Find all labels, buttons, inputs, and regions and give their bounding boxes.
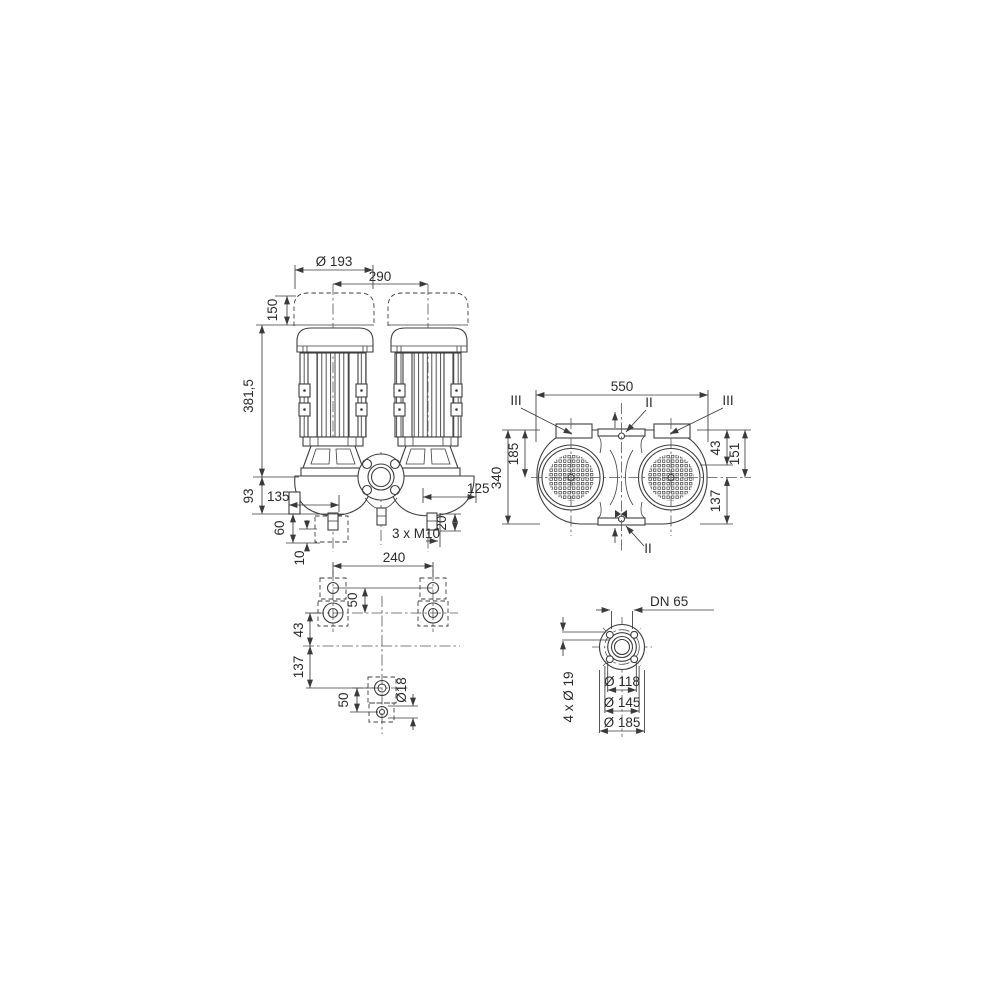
dim-overall-width: 340 (489, 467, 504, 490)
section-mark-II-bottom: II (644, 541, 652, 556)
plan-view: 550 340 185 43 151 137 III III II II (489, 379, 751, 556)
dim-edge-to-center: 151 (727, 443, 742, 466)
dim-bolt-hole-diameter: Ø18 (394, 677, 409, 703)
dim-axis-offset: 43 (291, 622, 306, 637)
drain-plug-center (377, 508, 386, 525)
dim-bolt-spacing: 240 (383, 550, 406, 565)
dim-center-to-edge: 137 (708, 490, 723, 513)
dim-raised-face-diameter: Ø 118 (604, 674, 640, 689)
left-lantern (303, 446, 363, 468)
dim-bolt-circle-diameter: Ø 145 (604, 695, 641, 710)
flange-bolt-hole (631, 631, 638, 638)
dim-bolt-holes: 4 x Ø 19 (561, 671, 576, 722)
dim-flange-outer-diameter: Ø 185 (604, 715, 641, 730)
technical-drawing-page: Ø 193 290 150 381,5 93 135 60 10 (0, 0, 1000, 1000)
right-motor (391, 328, 467, 476)
dim-axis-to-plug: 125 (467, 481, 490, 496)
left-motor-removal-outline (294, 293, 374, 326)
right-lantern (398, 446, 458, 468)
dim-axis-to-rear-bolt: 137 (291, 656, 306, 679)
foundation-dimensions: 240 50 43 137 50 Ø18 (291, 550, 433, 730)
drain-plug-left (328, 513, 338, 530)
pump-foot (289, 492, 300, 514)
dim-nominal-bore: DN 65 (650, 594, 688, 609)
front-elevation-view: Ø 193 290 150 381,5 93 135 60 10 (241, 254, 490, 566)
section-mark-III-left: III (510, 393, 521, 408)
dim-hole-pair-spacing-bottom: 50 (336, 692, 351, 707)
left-seal-housing (301, 468, 365, 476)
left-motor (297, 328, 373, 476)
terminal-box-left (556, 424, 592, 438)
dim-hole-pair-spacing-top: 50 (345, 592, 360, 607)
right-seal-housing (396, 468, 460, 476)
dim-overall-length: 550 (611, 379, 634, 394)
section-mark-III-right: III (722, 393, 733, 408)
dim-fan-diameter: Ø 193 (316, 254, 353, 269)
terminal-box-right (654, 424, 690, 438)
motor-flange-band (398, 437, 458, 446)
dim-pump-spacing: 290 (369, 269, 392, 284)
center-connection-flange (358, 454, 404, 500)
dim-foot-width: 135 (267, 489, 290, 504)
foundation-plan-view: 240 50 43 137 50 Ø18 (291, 550, 460, 734)
dim-grout-thickness: 10 (292, 550, 307, 565)
flange-bolt-hole (606, 656, 613, 663)
flange-detail-view: DN 65 4 x Ø 19 Ø 118 Ø 145 Ø 185 (561, 594, 714, 737)
pump-dimensional-drawing: Ø 193 290 150 381,5 93 135 60 10 (0, 0, 1000, 1000)
dim-dismantling-clearance: 150 (265, 299, 280, 322)
flange-bolt-hole (631, 656, 638, 663)
dim-base-block-height: 60 (272, 520, 287, 535)
flange-bolt-hole (606, 631, 613, 638)
dim-foot-threads: 3 x M10 (392, 526, 440, 541)
dim-edge-to-box: 43 (708, 440, 723, 455)
dim-edge-to-axis: 185 (506, 443, 521, 466)
flange-outer (600, 625, 645, 670)
dim-axis-to-base: 93 (241, 488, 256, 503)
motor-flange-band (303, 437, 363, 446)
dim-height-above-axis: 381,5 (241, 379, 256, 413)
section-mark-II-top: II (645, 395, 653, 410)
